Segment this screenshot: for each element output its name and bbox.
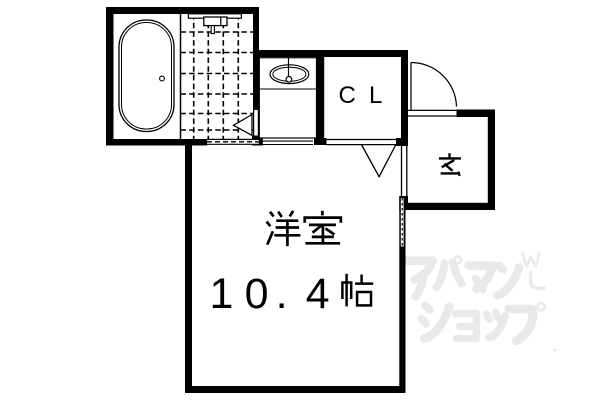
svg-text:.: . xyxy=(276,270,288,318)
svg-text:0: 0 xyxy=(245,270,269,318)
svg-text:C: C xyxy=(339,82,356,109)
svg-text:L: L xyxy=(369,82,382,109)
svg-text:4: 4 xyxy=(306,270,330,318)
svg-text:1: 1 xyxy=(210,270,234,318)
